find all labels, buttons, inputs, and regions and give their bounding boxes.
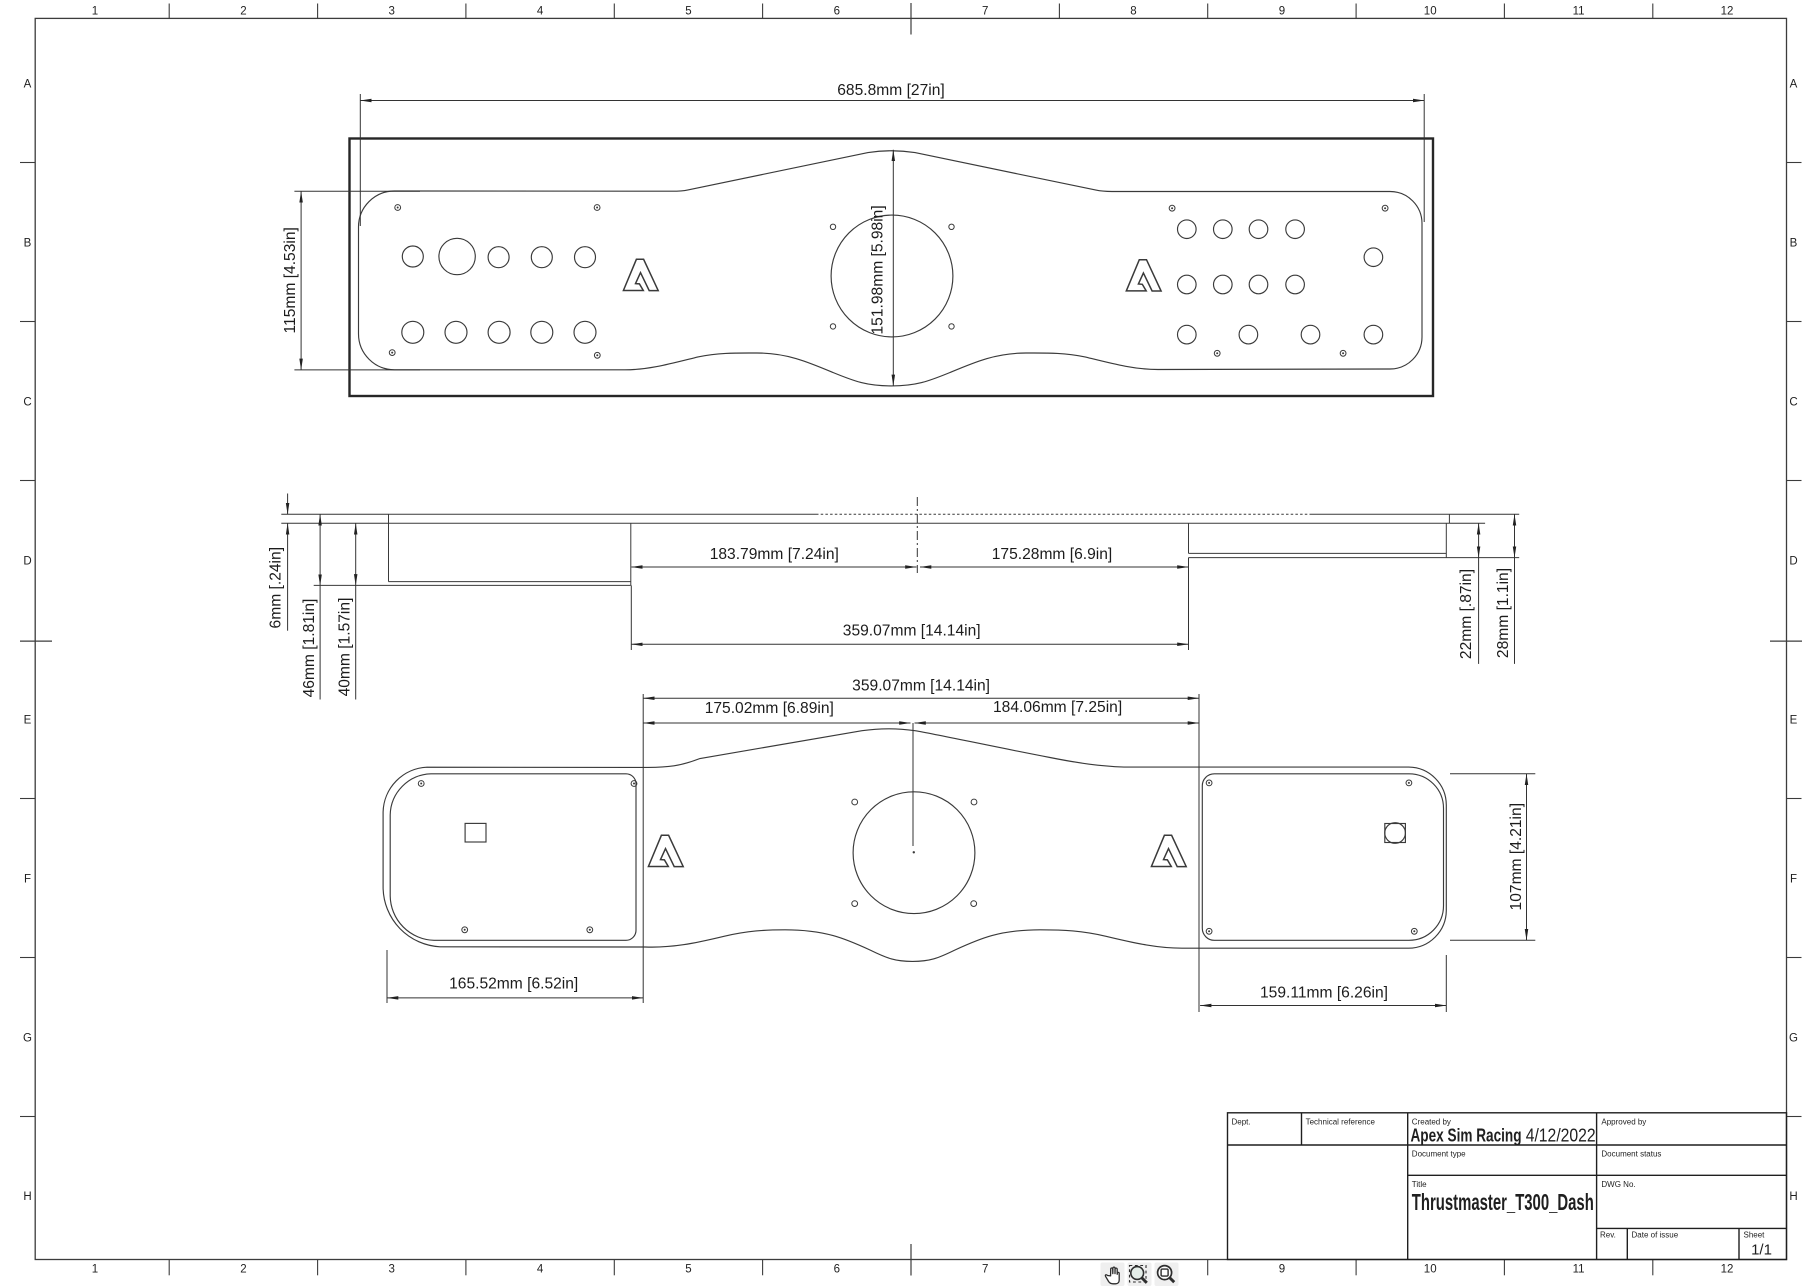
svg-text:B: B	[1790, 238, 1798, 250]
svg-text:10: 10	[1424, 6, 1437, 18]
svg-text:359.07mm [14.14in]: 359.07mm [14.14in]	[843, 623, 981, 640]
svg-text:12: 12	[1721, 6, 1734, 18]
svg-text:151.98mm [5.98in]: 151.98mm [5.98in]	[870, 205, 887, 334]
svg-text:6: 6	[834, 1264, 840, 1276]
svg-text:12: 12	[1721, 1264, 1734, 1276]
svg-text:Dept.: Dept.	[1232, 1118, 1251, 1127]
svg-text:8: 8	[1130, 6, 1136, 18]
svg-text:Document status: Document status	[1601, 1150, 1661, 1159]
svg-text:183.79mm [7.24in]: 183.79mm [7.24in]	[710, 546, 839, 563]
svg-text:F: F	[24, 873, 31, 885]
svg-text:184.06mm [7.25in]: 184.06mm [7.25in]	[993, 699, 1122, 716]
svg-text:Document type: Document type	[1412, 1150, 1466, 1159]
svg-text:D: D	[1789, 555, 1797, 567]
svg-text:2: 2	[240, 6, 246, 18]
svg-text:G: G	[23, 1032, 32, 1044]
svg-text:4/12/2022: 4/12/2022	[1526, 1125, 1596, 1145]
svg-text:359.07mm [14.14in]: 359.07mm [14.14in]	[852, 678, 990, 695]
svg-text:175.02mm [6.89in]: 175.02mm [6.89in]	[705, 700, 834, 717]
svg-text:175.28mm [6.9in]: 175.28mm [6.9in]	[992, 546, 1113, 563]
svg-text:Rev.: Rev.	[1600, 1231, 1616, 1240]
svg-text:F: F	[1790, 873, 1797, 885]
svg-text:B: B	[24, 238, 32, 250]
svg-text:C: C	[23, 397, 31, 409]
svg-text:1: 1	[92, 6, 98, 18]
svg-text:C: C	[1789, 397, 1797, 409]
svg-text:6: 6	[834, 6, 840, 18]
svg-text:5: 5	[685, 1264, 691, 1276]
svg-text:Thrustmaster_T300_Dash: Thrustmaster_T300_Dash	[1412, 1189, 1594, 1215]
svg-text:5: 5	[685, 6, 691, 18]
svg-text:11: 11	[1573, 6, 1585, 18]
svg-text:G: G	[1789, 1032, 1798, 1044]
svg-text:115mm [4.53in]: 115mm [4.53in]	[282, 227, 299, 333]
svg-text:3: 3	[388, 6, 394, 18]
svg-text:Title: Title	[1412, 1180, 1427, 1189]
svg-text:11: 11	[1573, 1264, 1585, 1276]
svg-text:H: H	[23, 1191, 31, 1203]
svg-text:6mm [.24in]: 6mm [.24in]	[267, 547, 284, 628]
svg-text:46mm [1.81in]: 46mm [1.81in]	[301, 599, 318, 698]
svg-text:Approved by: Approved by	[1601, 1118, 1646, 1127]
svg-text:1/1: 1/1	[1751, 1242, 1772, 1259]
svg-text:4: 4	[537, 6, 544, 18]
svg-text:A: A	[1790, 79, 1798, 91]
svg-text:1: 1	[92, 1264, 98, 1276]
svg-text:H: H	[1789, 1191, 1797, 1203]
svg-text:Apex Sim Racing: Apex Sim Racing	[1411, 1125, 1522, 1145]
svg-text:7: 7	[982, 6, 988, 18]
svg-text:28mm [1.1in]: 28mm [1.1in]	[1495, 568, 1512, 658]
svg-text:7: 7	[982, 1264, 988, 1276]
svg-text:3: 3	[388, 1264, 394, 1276]
svg-text:Date of issue: Date of issue	[1632, 1231, 1679, 1240]
svg-text:10: 10	[1424, 1264, 1437, 1276]
svg-text:E: E	[24, 714, 32, 726]
svg-text:2: 2	[240, 1264, 246, 1276]
svg-text:E: E	[1790, 714, 1798, 726]
svg-text:107mm [4.21in]: 107mm [4.21in]	[1508, 803, 1525, 910]
svg-text:165.52mm [6.52in]: 165.52mm [6.52in]	[449, 976, 578, 993]
svg-text:DWG No.: DWG No.	[1601, 1180, 1635, 1189]
svg-text:D: D	[23, 555, 31, 567]
svg-text:9: 9	[1279, 6, 1285, 18]
svg-text:685.8mm [27in]: 685.8mm [27in]	[837, 82, 944, 99]
svg-text:Sheet: Sheet	[1744, 1231, 1766, 1240]
svg-text:9: 9	[1279, 1264, 1285, 1276]
svg-text:40mm [1.57in]: 40mm [1.57in]	[336, 598, 353, 697]
svg-text:A: A	[24, 79, 32, 91]
svg-text:4: 4	[537, 1264, 544, 1276]
svg-text:22mm [.87in]: 22mm [.87in]	[1458, 569, 1475, 659]
svg-text:159.11mm [6.26in]: 159.11mm [6.26in]	[1260, 984, 1388, 1001]
svg-text:Technical reference: Technical reference	[1306, 1118, 1376, 1127]
